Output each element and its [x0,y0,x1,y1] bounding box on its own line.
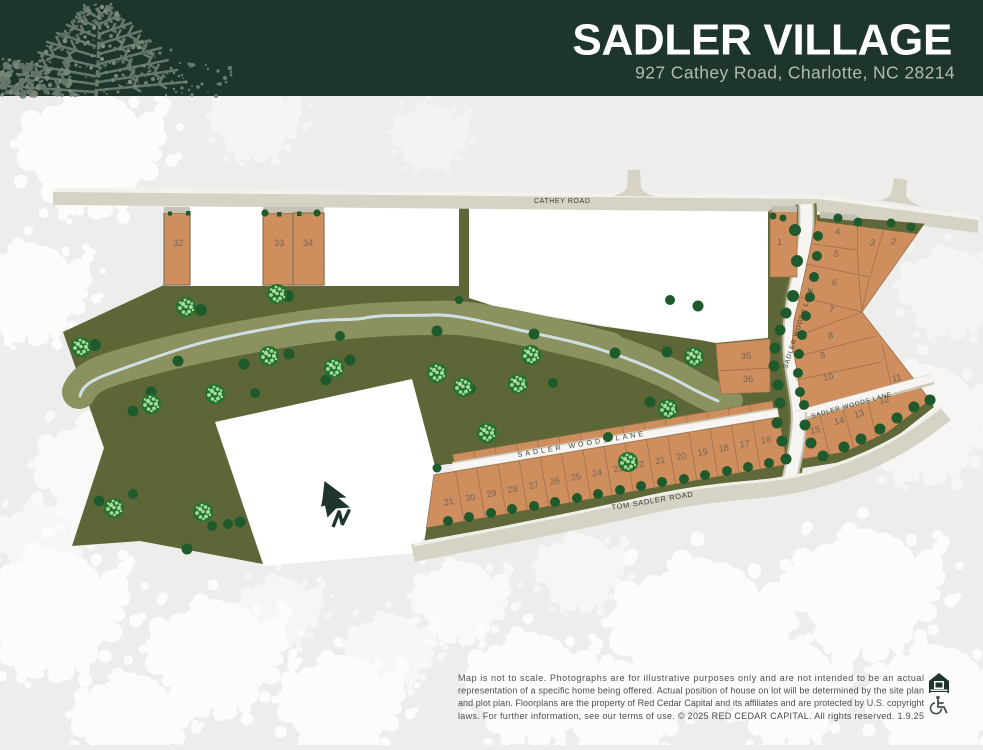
svg-text:SADLER VILLAGE: SADLER VILLAGE [572,16,952,65]
svg-text:30: 30 [465,492,477,504]
svg-text:28: 28 [507,483,519,495]
svg-text:29: 29 [486,488,498,500]
svg-text:representation of a specific h: representation of a specific home being … [458,686,924,696]
svg-text:32: 32 [173,238,183,248]
svg-text:1: 1 [777,237,782,247]
svg-text:927 Cathey Road, Charlotte, N: 927 Cathey Road, Charlotte, NC 28214 [635,63,955,83]
svg-text:34: 34 [303,238,313,248]
svg-text:35: 35 [741,351,751,361]
svg-text:26: 26 [549,475,561,487]
svg-text:15: 15 [809,424,821,436]
svg-text:and plot plan. Floorplans are: and plot plan. Floorplans are the proper… [458,698,924,708]
svg-text:18: 18 [718,442,730,454]
svg-text:33: 33 [274,238,284,248]
svg-text:36: 36 [743,374,753,384]
svg-text:24: 24 [591,467,603,479]
svg-text:20: 20 [676,450,688,462]
svg-text:27: 27 [528,479,540,491]
svg-text:Map is not to scale. Photograp: Map is not to scale. Photographs are for… [458,673,924,683]
svg-text:31: 31 [443,496,455,508]
svg-text:10: 10 [822,371,834,383]
svg-text:16: 16 [760,434,772,446]
svg-text:25: 25 [570,471,582,483]
svg-text:17: 17 [739,438,751,450]
svg-text:laws. For further information,: laws. For further information, see our t… [458,711,924,721]
svg-text:21: 21 [654,455,666,467]
svg-text:CATHEY ROAD: CATHEY ROAD [534,198,591,205]
svg-text:19: 19 [697,446,709,458]
